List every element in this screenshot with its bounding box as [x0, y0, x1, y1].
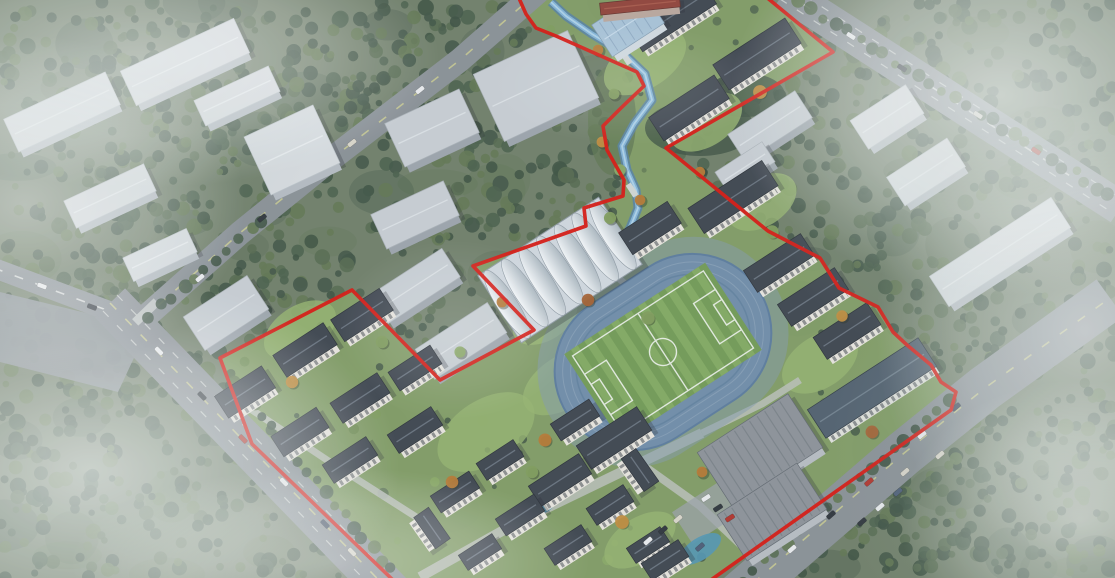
color-tint: [0, 0, 1115, 578]
aerial-rendering: [0, 0, 1115, 578]
aerial-site-rendering: [0, 0, 1115, 578]
